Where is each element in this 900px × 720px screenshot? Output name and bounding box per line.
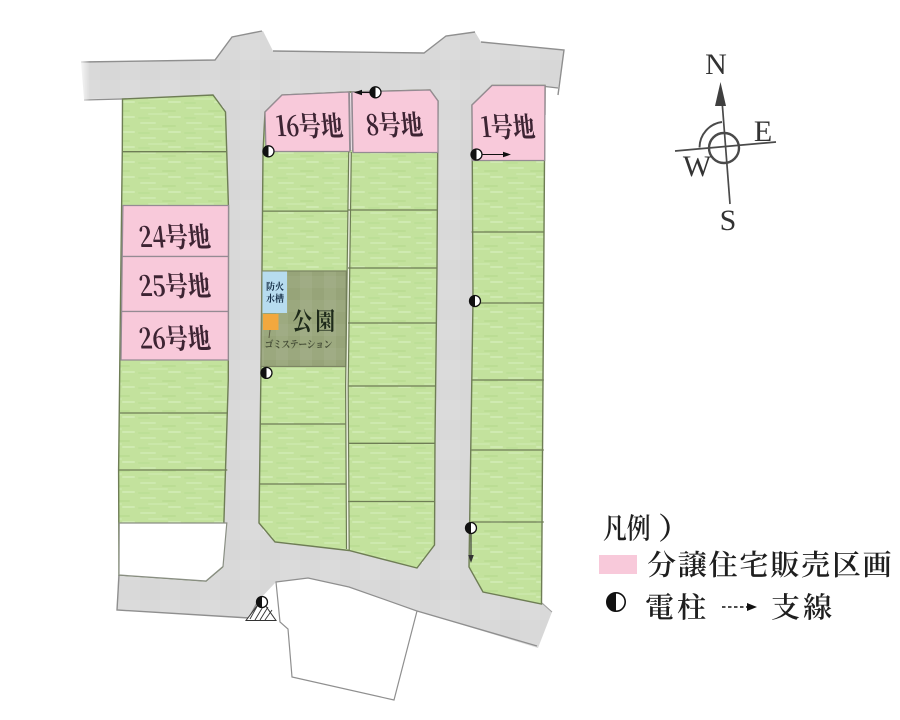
svg-text:S: S [720,204,737,237]
svg-text:W: W [683,150,712,183]
svg-text:E: E [754,115,772,148]
svg-text:N: N [705,48,727,81]
